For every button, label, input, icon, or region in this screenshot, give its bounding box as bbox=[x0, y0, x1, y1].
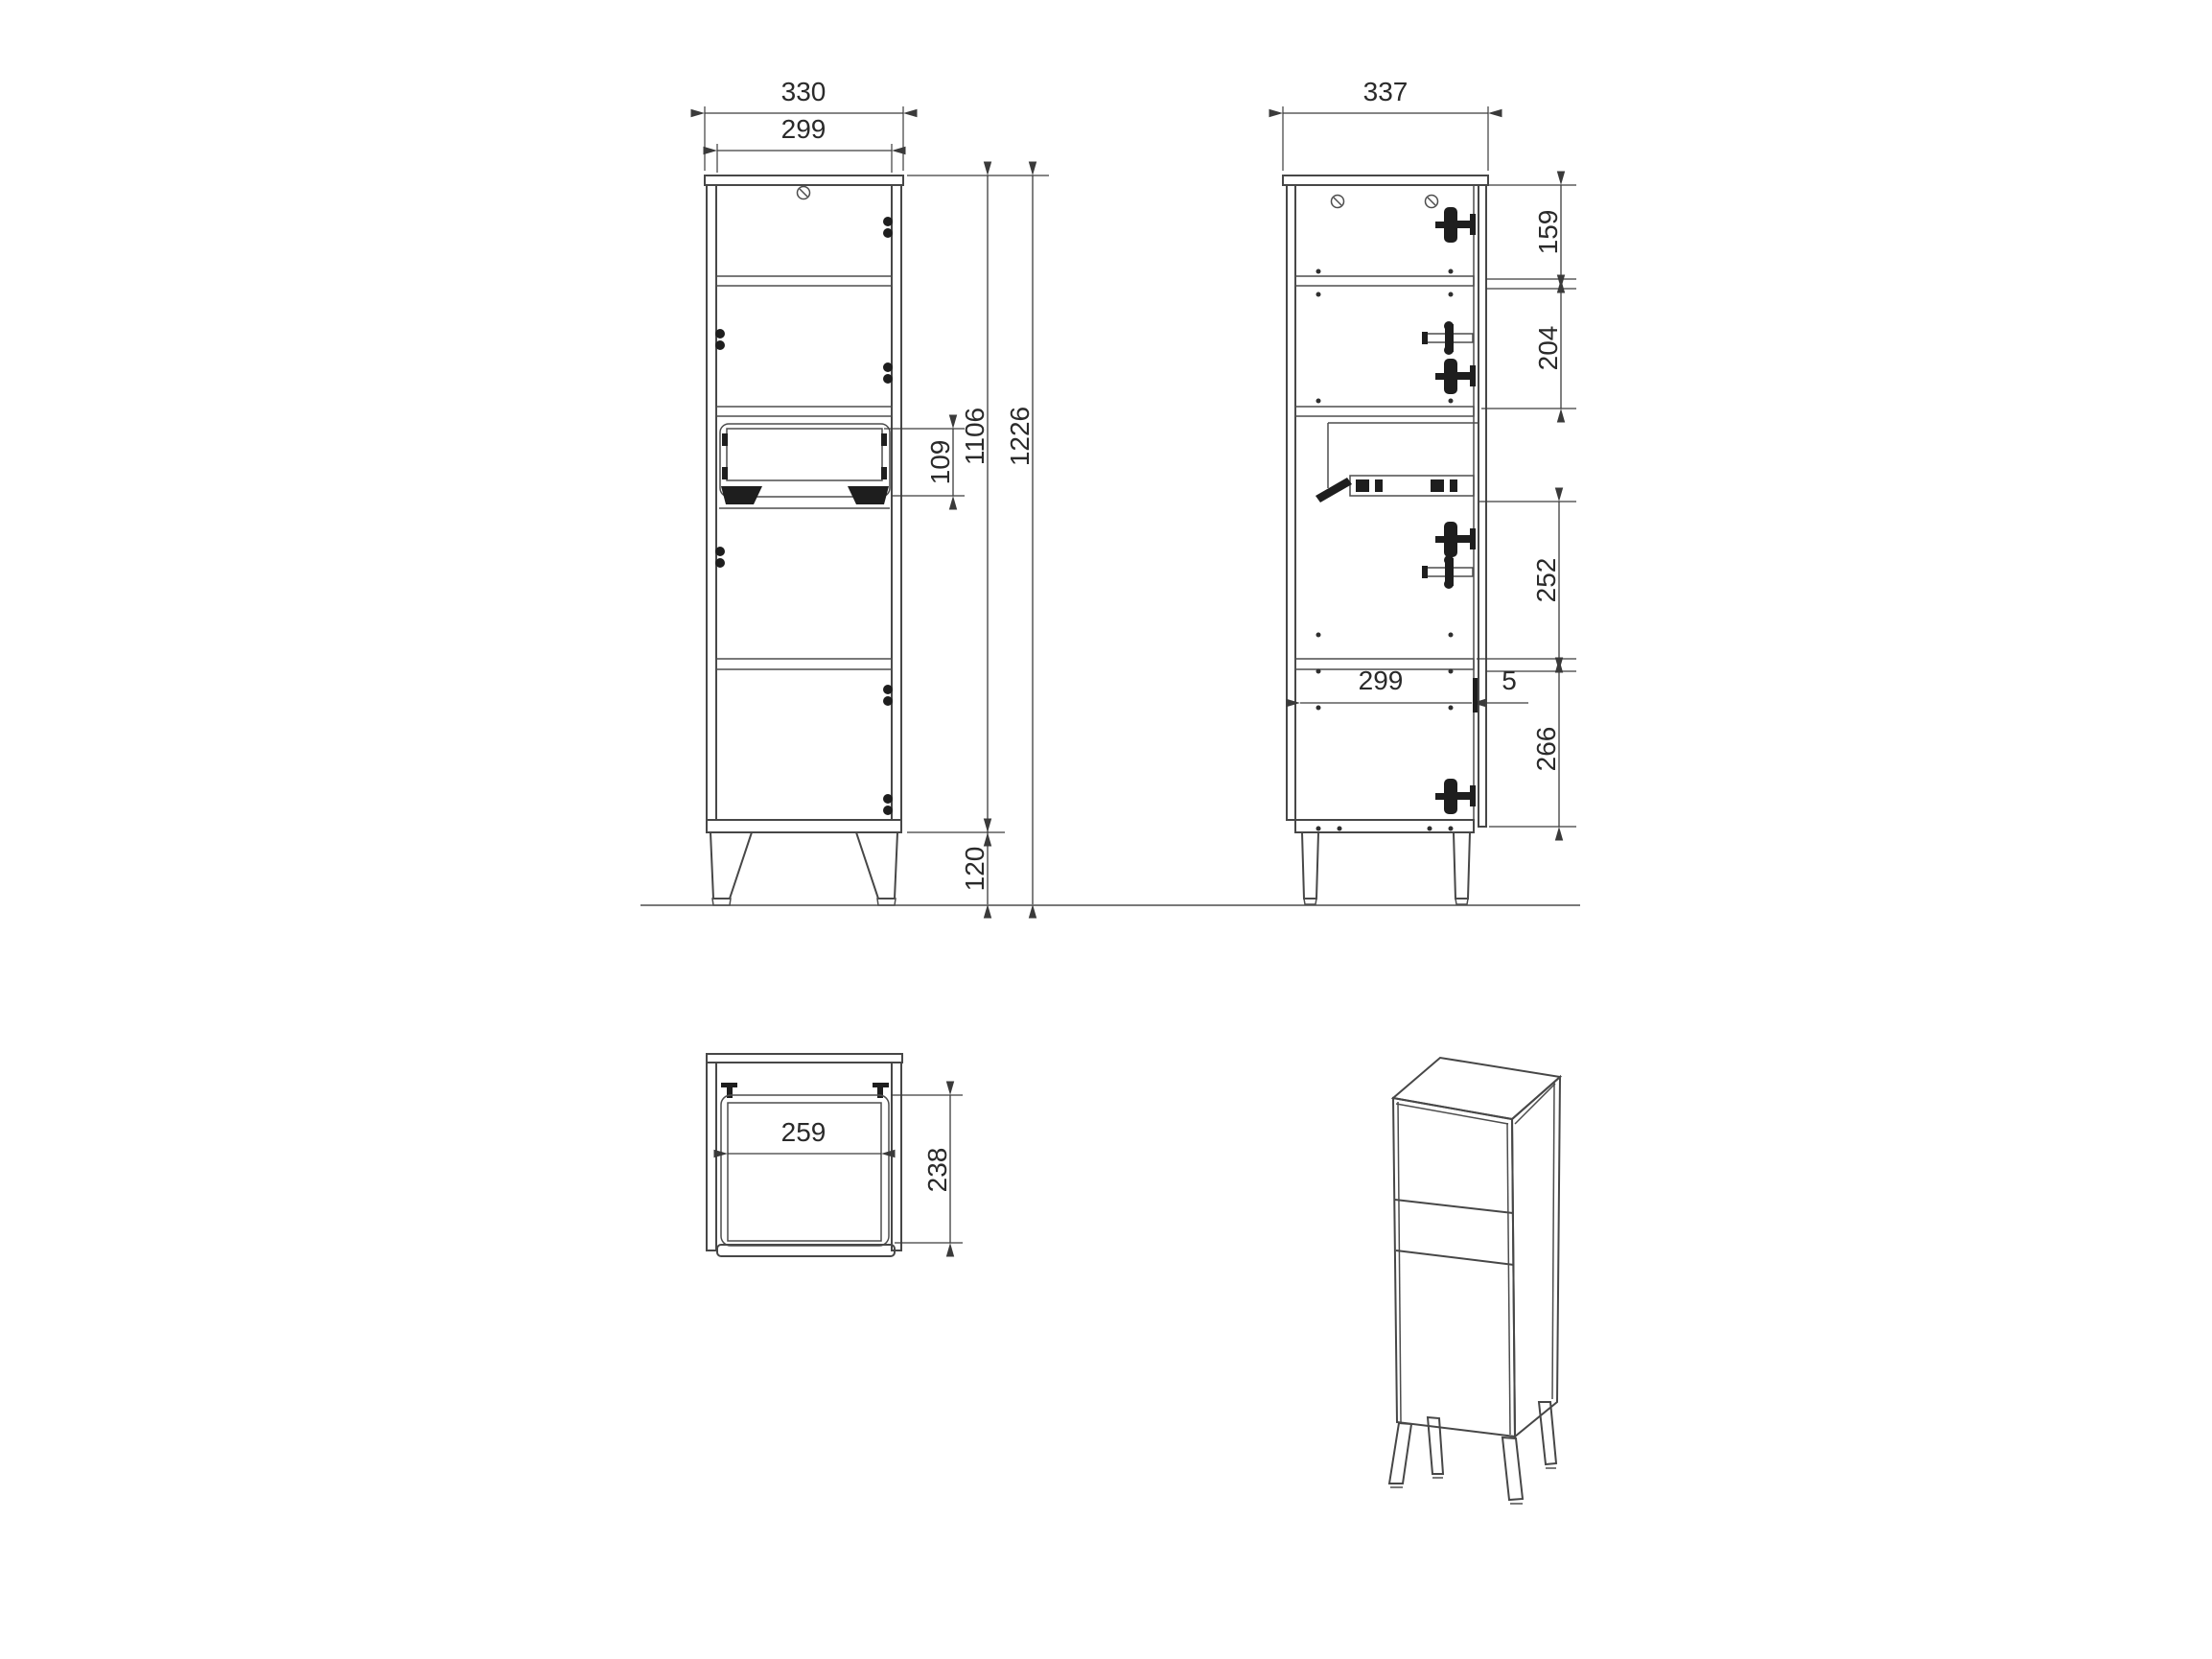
dim-front-total-height: 1226 bbox=[1005, 407, 1035, 466]
dim-front-outer-width: 330 bbox=[781, 77, 827, 106]
dim-side-upper-section: 204 bbox=[1533, 326, 1563, 371]
screw-icons bbox=[1332, 196, 1438, 208]
dim-side-top-section: 159 bbox=[1533, 210, 1563, 255]
drawer-door-split-line bbox=[1396, 1250, 1514, 1265]
side-top-panel bbox=[1283, 175, 1488, 185]
side-legs bbox=[1302, 832, 1470, 904]
dim-top-drawer-depth: 238 bbox=[922, 1148, 952, 1193]
front-drawer bbox=[719, 424, 890, 508]
dim-side-depth: 337 bbox=[1363, 77, 1409, 106]
dim-side-interior-depth: 299 bbox=[1359, 666, 1404, 695]
door-edge-line bbox=[1507, 1123, 1510, 1435]
front-shelf-2 bbox=[716, 407, 892, 416]
top-back-panel bbox=[707, 1054, 902, 1063]
perspective-legs bbox=[1389, 1402, 1556, 1504]
front-right-wall bbox=[892, 185, 901, 820]
technical-drawing: 330 299 1106 1226 109 120 bbox=[0, 0, 2212, 1659]
cabinet-top-face bbox=[1393, 1058, 1560, 1119]
front-top-panel bbox=[705, 175, 903, 185]
perspective-view bbox=[1389, 1058, 1560, 1504]
side-shelf-2 bbox=[1295, 407, 1474, 416]
front-shelf-1 bbox=[716, 276, 892, 286]
front-legs bbox=[710, 832, 897, 905]
front-shelf-3 bbox=[716, 659, 892, 669]
top-right-wall bbox=[892, 1063, 901, 1250]
hinge-marks bbox=[715, 217, 893, 815]
dim-side-front-gap: 5 bbox=[1502, 666, 1517, 695]
dim-side-middle-section: 252 bbox=[1531, 558, 1561, 603]
door-drawer-split-line bbox=[1395, 1200, 1513, 1213]
front-bottom-panel bbox=[707, 820, 901, 832]
side-back-wall bbox=[1287, 185, 1295, 820]
screw-icon bbox=[798, 187, 810, 199]
front-view: 330 299 1106 1226 109 120 bbox=[705, 77, 1049, 905]
top-view: 259 238 bbox=[707, 1054, 963, 1256]
dim-front-carcass-height: 1106 bbox=[960, 408, 990, 465]
side-view: 337 159 204 252 266 299 5 bbox=[1283, 77, 1576, 904]
cabinet-front-face bbox=[1393, 1098, 1515, 1437]
drawer-front-panel bbox=[717, 1245, 895, 1256]
dim-front-leg-height: 120 bbox=[960, 847, 990, 892]
side-drawer-slide bbox=[1316, 423, 1478, 502]
technical-drawing-canvas: 330 299 1106 1226 109 120 bbox=[0, 0, 2212, 1659]
top-dimensions: 259 238 bbox=[728, 1095, 963, 1243]
side-door-panel bbox=[1479, 185, 1486, 827]
front-left-wall bbox=[707, 185, 716, 820]
dim-top-drawer-width: 259 bbox=[781, 1117, 827, 1147]
hinge-hardware bbox=[1435, 207, 1476, 814]
dim-front-inner-width: 299 bbox=[781, 114, 827, 144]
side-dimensions: 337 159 204 252 266 299 5 bbox=[1283, 77, 1576, 827]
dim-side-bottom-section: 266 bbox=[1531, 727, 1561, 772]
dim-front-drawer-height: 109 bbox=[925, 440, 955, 485]
side-bottom-panel bbox=[1295, 820, 1474, 832]
side-shelf-1 bbox=[1295, 276, 1474, 286]
drill-holes bbox=[1316, 269, 1454, 831]
top-left-wall bbox=[707, 1063, 716, 1250]
